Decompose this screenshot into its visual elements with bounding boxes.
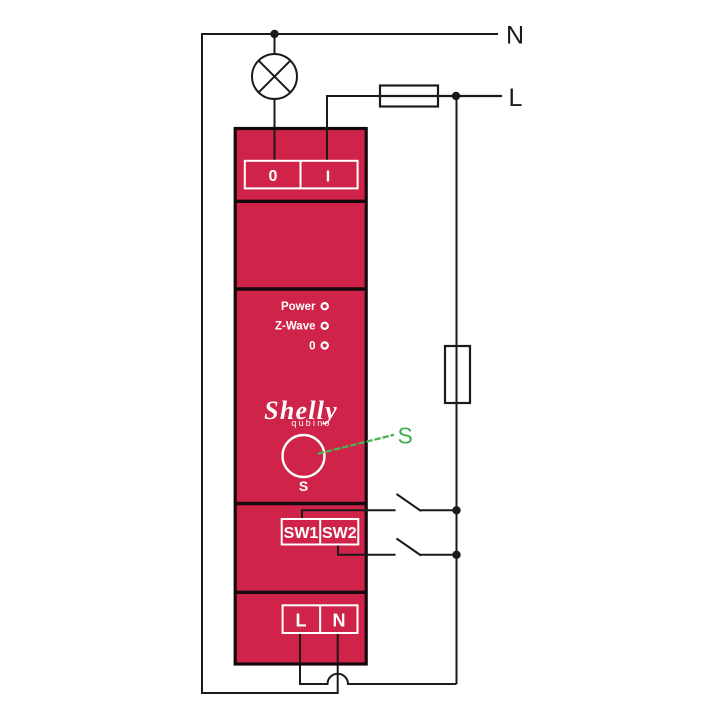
svg-text:N: N xyxy=(506,22,524,50)
svg-text:L: L xyxy=(296,611,307,631)
svg-text:S: S xyxy=(299,478,308,494)
svg-text:S: S xyxy=(398,423,413,449)
svg-text:qubino: qubino xyxy=(291,418,331,428)
svg-text:L: L xyxy=(509,84,523,112)
svg-text:N: N xyxy=(333,611,346,631)
svg-text:SW1: SW1 xyxy=(284,525,319,542)
svg-text:0: 0 xyxy=(269,168,278,185)
svg-text:0: 0 xyxy=(309,341,315,353)
svg-text:SW2: SW2 xyxy=(322,525,357,542)
svg-text:Power: Power xyxy=(281,301,316,313)
svg-text:Z-Wave: Z-Wave xyxy=(275,321,315,333)
svg-text:I: I xyxy=(326,169,330,186)
